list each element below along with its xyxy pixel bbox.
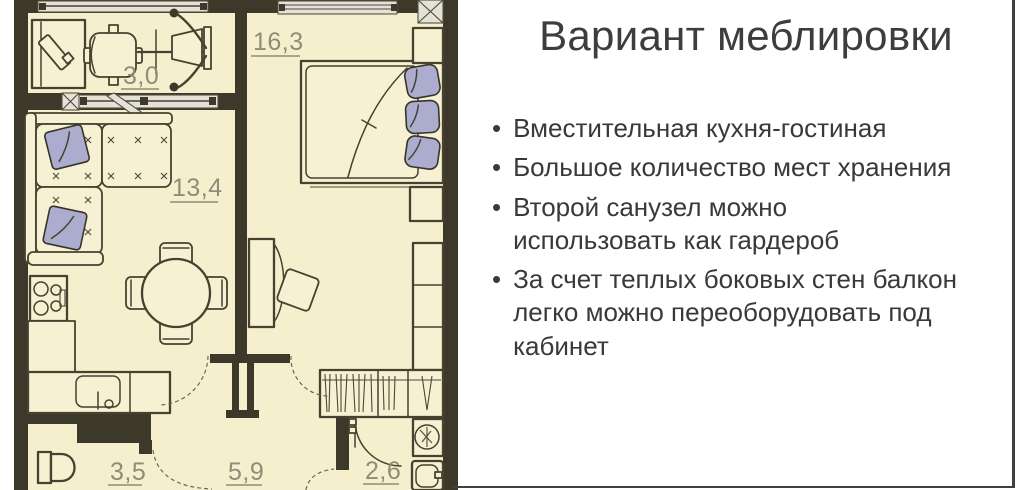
bed-pillow [405, 100, 440, 134]
slide-title: Вариант меблировки [478, 12, 1014, 60]
slide-bottom-border [452, 486, 1015, 488]
text-panel: Вариант меблировки • Вместительная кухня… [478, 12, 1014, 369]
bathroom2-area-label: 2,6 [365, 457, 401, 485]
nightstand [410, 187, 443, 221]
balcony-window [38, 1, 208, 12]
bullet-list: • Вместительная кухня-гостиная • Большое… [492, 112, 1014, 363]
bullet-item: • За счет теплых боковых стен балкон лег… [492, 263, 1014, 363]
toilet [38, 452, 75, 483]
hallway-area-label: 5,9 [228, 458, 264, 486]
closet-hangers [320, 370, 443, 417]
living-area-label: 13,4 [172, 174, 223, 202]
bed [301, 61, 443, 187]
slide-right-border [1012, 0, 1015, 487]
bed-pillow [404, 135, 441, 170]
dining-table [142, 259, 210, 327]
bullet-item: • Большое количество мест хранения [492, 151, 1014, 184]
bathroom2-sink [412, 461, 443, 490]
balcony-area-label: 3,0 [123, 62, 159, 90]
bedroom-window [278, 1, 397, 14]
bullet-text: Большое количество мест хранения [513, 151, 951, 184]
bullet-text: Вместительная кухня-гостиная [513, 112, 886, 145]
bedroom-area-label: 16,3 [253, 28, 304, 56]
slide: 3,0 [0, 0, 1024, 490]
nightstand [413, 28, 443, 63]
wardrobe [413, 243, 443, 370]
duct-shaft [77, 413, 151, 443]
pier-top-right [418, 0, 443, 23]
bed-pillow [403, 63, 441, 99]
balcony-desk [32, 20, 85, 88]
bullet-marker: • [492, 263, 501, 363]
bullet-text: Второй санузел можно использовать как га… [513, 191, 839, 258]
sofa-pillow [42, 205, 87, 250]
stove [30, 276, 67, 321]
bullet-item: • Вместительная кухня-гостиная [492, 112, 1014, 145]
pier-left [62, 93, 79, 110]
bullet-text: За счет теплых боковых стен балкон легко… [513, 263, 957, 363]
bathroom-area-label: 3,5 [110, 458, 146, 486]
washing-machine [413, 419, 443, 456]
bullet-marker: • [492, 112, 501, 145]
sofa-pillow [44, 124, 90, 170]
bullet-item: • Второй санузел можно использовать как … [492, 191, 1014, 258]
bullet-marker: • [492, 151, 501, 184]
floor-plan: 3,0 [10, 0, 458, 490]
bullet-marker: • [492, 191, 501, 258]
